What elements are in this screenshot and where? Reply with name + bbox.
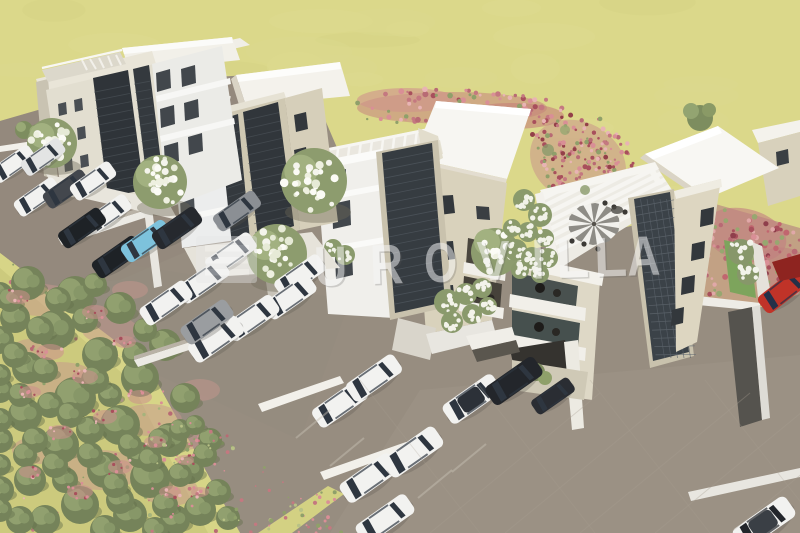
svg-text:I: I <box>531 227 545 290</box>
svg-text:A: A <box>626 224 661 288</box>
svg-text:L: L <box>555 226 590 290</box>
svg-text:R: R <box>369 232 404 296</box>
svg-text:U: U <box>313 234 348 298</box>
svg-text:L: L <box>593 225 628 289</box>
svg-text:O: O <box>423 230 458 294</box>
svg-text:V: V <box>476 229 511 293</box>
